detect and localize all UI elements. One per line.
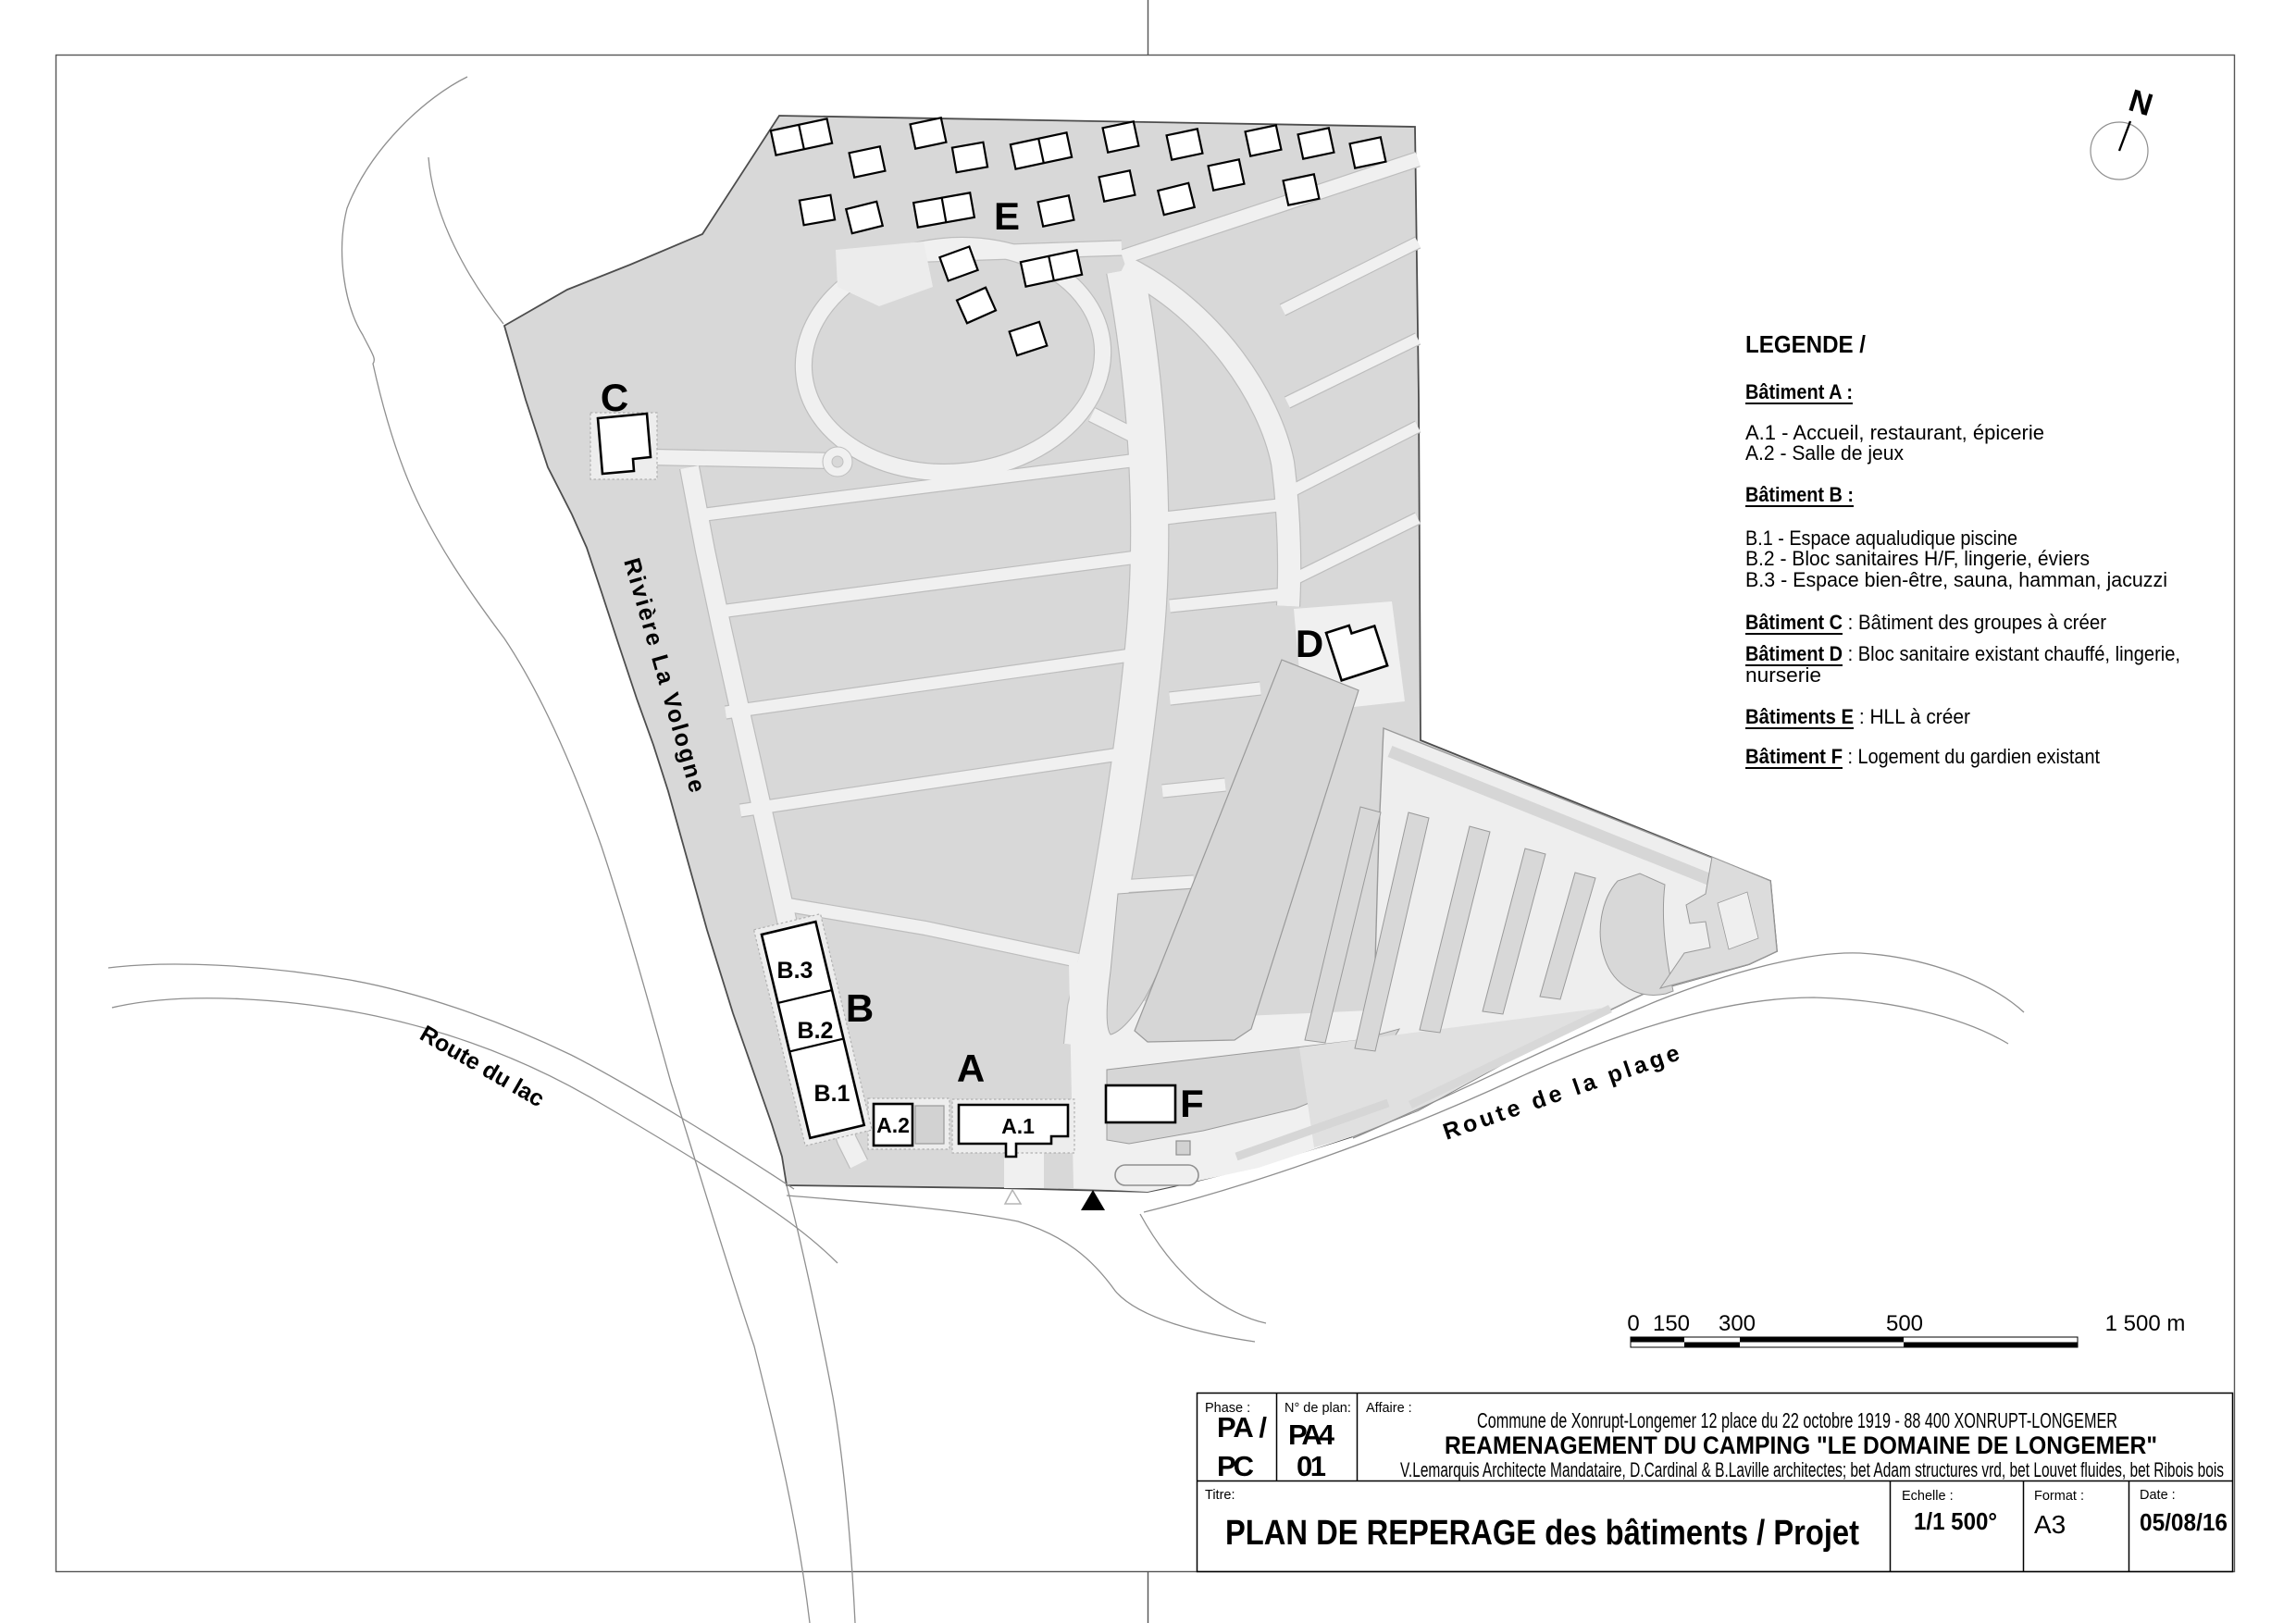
svg-text:: Bâtiment des groupes à créer: : Bâtiment des groupes à créer: [1843, 611, 2106, 634]
svg-text:B: B: [846, 986, 874, 1030]
svg-text:: Bloc sanitaire existant chau: : Bloc sanitaire existant chauffé, linge…: [1843, 642, 2180, 665]
svg-text:150: 150: [1653, 1311, 1690, 1336]
svg-text:A3: A3: [2034, 1510, 2066, 1539]
svg-text:500: 500: [1886, 1311, 1923, 1336]
svg-text:F: F: [1180, 1082, 1204, 1125]
svg-text:Bâtiment A :: Bâtiment A :: [1745, 380, 1853, 403]
svg-text:B.3: B.3: [777, 958, 813, 984]
svg-text:Format :: Format :: [2034, 1489, 2084, 1504]
svg-text:B.2: B.2: [798, 1018, 834, 1044]
svg-text:Bâtiments E: Bâtiments E: [1745, 705, 1854, 728]
svg-text:nurserie: nurserie: [1745, 663, 1821, 687]
svg-text:A.1: A.1: [1001, 1114, 1035, 1138]
svg-text:Commune de Xonrupt-Longemer 12: Commune de Xonrupt-Longemer 12 place du …: [1477, 1408, 2117, 1432]
svg-text:REAMENAGEMENT DU CAMPING "LE D: REAMENAGEMENT DU CAMPING "LE DOMAINE DE …: [1445, 1431, 2157, 1459]
svg-text:Titre:: Titre:: [1205, 1488, 1235, 1503]
svg-text:PA4: PA4: [1288, 1419, 1335, 1451]
svg-text:PLAN DE REPERAGE des bâtiments: PLAN DE REPERAGE des bâtiments / Projet: [1225, 1514, 1859, 1553]
svg-text:Date :: Date :: [2140, 1488, 2176, 1503]
svg-text:A.2 - Salle de jeux: A.2 - Salle de jeux: [1745, 441, 1904, 465]
svg-text:A.2: A.2: [876, 1113, 910, 1137]
svg-text:B.3 - Espace bien-être, sauna,: B.3 - Espace bien-être, sauna, hamman, j…: [1745, 568, 2167, 591]
svg-text:Bâtiment C: Bâtiment C: [1745, 611, 1843, 634]
svg-text:0: 0: [1627, 1311, 1639, 1336]
svg-text:D: D: [1296, 622, 1323, 665]
svg-text:1/1 500°: 1/1 500°: [1914, 1507, 1997, 1535]
svg-text:05/08/16: 05/08/16: [2140, 1508, 2228, 1536]
svg-text:300: 300: [1719, 1311, 1756, 1336]
svg-text:A: A: [957, 1047, 985, 1090]
svg-text:: HLL à créer: : HLL à créer: [1854, 705, 1970, 728]
svg-text:Affaire :: Affaire :: [1366, 1401, 1412, 1416]
svg-text:N° de plan:: N° de plan:: [1285, 1401, 1351, 1416]
svg-text:V.Lemarquis Architecte Mandata: V.Lemarquis Architecte Mandataire, D.Car…: [1400, 1458, 2224, 1481]
svg-text:Bâtiment F: Bâtiment F: [1745, 745, 1843, 768]
svg-text:PA /: PA /: [1217, 1411, 1267, 1443]
svg-text:E: E: [994, 194, 1020, 238]
svg-text:B.1: B.1: [814, 1081, 850, 1107]
svg-text:: Logement du gardien existant: : Logement du gardien existant: [1843, 745, 2100, 768]
svg-text:PC: PC: [1217, 1450, 1254, 1482]
svg-text:Bâtiment D: Bâtiment D: [1745, 642, 1843, 665]
svg-text:1 500 m: 1 500 m: [2105, 1311, 2186, 1336]
svg-text:C: C: [601, 376, 628, 419]
svg-text:Echelle :: Echelle :: [1902, 1489, 1954, 1504]
svg-text:B.2 - Bloc sanitaires H/F, lin: B.2 - Bloc sanitaires H/F, lingerie, évi…: [1745, 547, 2090, 570]
svg-text:LEGENDE /: LEGENDE /: [1745, 330, 1866, 358]
svg-text:Bâtiment B :: Bâtiment B :: [1745, 483, 1854, 506]
svg-text:01: 01: [1297, 1450, 1326, 1482]
